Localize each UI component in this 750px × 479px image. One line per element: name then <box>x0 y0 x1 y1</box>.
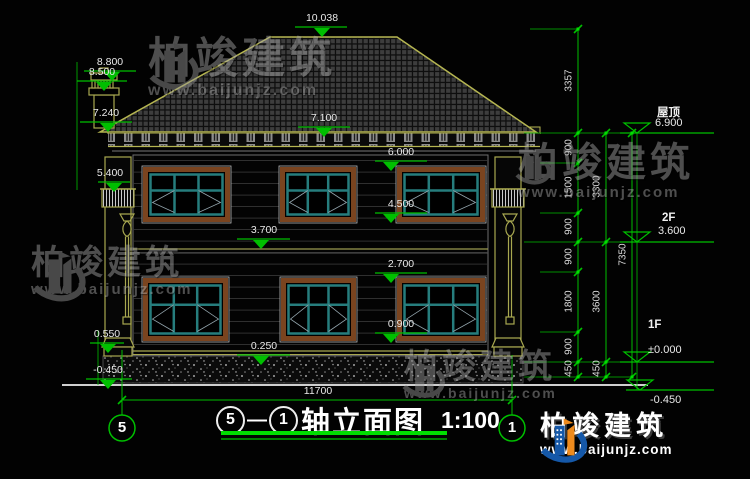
title-separator: — <box>247 409 267 432</box>
chain-dim: 3300 <box>592 165 603 209</box>
chain-dim: 3600 <box>592 280 603 324</box>
elevation-label: 0.900 <box>375 319 427 330</box>
title-underline <box>221 431 447 435</box>
window-2f-1 <box>142 166 231 223</box>
window-1f-2 <box>280 277 357 342</box>
f1-level-label: 1F <box>648 319 661 331</box>
chain-dim: 1800 <box>564 280 575 324</box>
elevation-label: 10.038 <box>296 13 348 24</box>
elevation-label: 0.250 <box>238 341 290 352</box>
company-logo: 柏竣建筑 www.baijunjz.com <box>534 412 673 457</box>
chain-dim: 900 <box>564 235 575 279</box>
elevation-label: 6.000 <box>375 147 427 158</box>
elevation-label: 3.700 <box>238 225 290 236</box>
chain-dim: 900 <box>564 126 575 170</box>
cad-elevation-drawing: 10.038 8.800 8.500 7.240 5.400 7.100 6.0… <box>0 0 750 479</box>
elevation-label: 2.700 <box>375 259 427 270</box>
roof-level-value: 6.900 <box>655 117 683 129</box>
chain-dim: 450 <box>592 347 603 391</box>
window-2f-2 <box>279 166 357 223</box>
elevation-label: 8.500 <box>76 67 128 78</box>
dimension-chains <box>524 25 636 381</box>
elevation-label: 0.550 <box>85 329 129 340</box>
window-2f-3 <box>396 166 486 223</box>
chain-dim: 7350 <box>618 233 629 277</box>
foundation <box>103 356 523 383</box>
axis-bubble-left: 5 <box>115 419 129 436</box>
company-logo-icon <box>534 412 588 470</box>
below-grade-value: -0.450 <box>650 394 681 406</box>
title-underline-2 <box>221 438 447 440</box>
chain-dim: 450 <box>564 347 575 391</box>
f2-level-value: 3.600 <box>658 225 686 237</box>
f1-level-value: ±0.000 <box>648 344 682 356</box>
window-1f-3 <box>396 277 486 342</box>
elevation-label: 7.240 <box>80 108 132 119</box>
title-scale: 1:100 <box>441 407 500 434</box>
window-1f-1 <box>142 277 229 342</box>
overall-width-dim: 11700 <box>294 386 342 397</box>
elevation-label: 7.100 <box>298 113 350 124</box>
elevation-label: -0.450 <box>84 365 132 376</box>
chain-dim: 1500 <box>564 166 575 210</box>
elevation-label: 5.400 <box>88 168 132 179</box>
axis-bubble-right: 1 <box>505 419 519 436</box>
elevation-label: 4.500 <box>375 199 427 210</box>
f2-level-label: 2F <box>662 212 675 224</box>
chain-dim: 3357 <box>564 59 575 103</box>
